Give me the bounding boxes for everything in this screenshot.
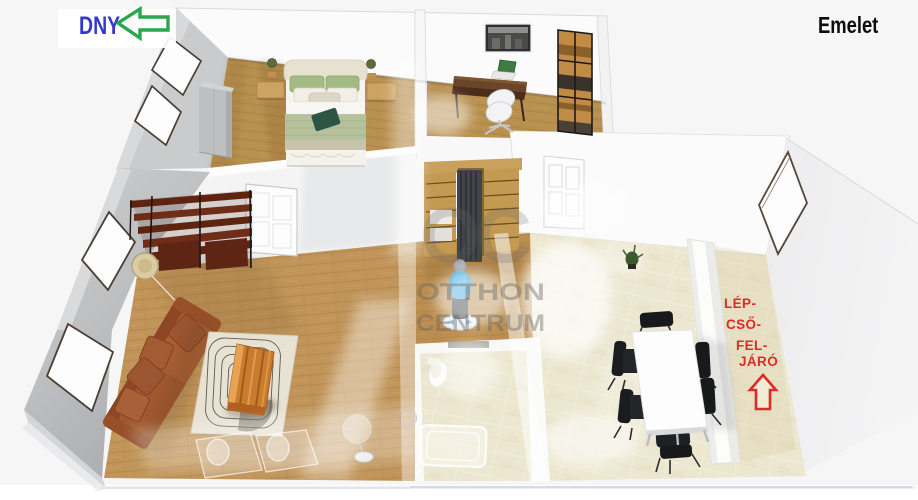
svg-text:LÉP-: LÉP- — [724, 296, 756, 311]
svg-text:Emelet: Emelet — [818, 13, 878, 38]
svg-text:FEL-: FEL- — [736, 338, 768, 353]
svg-text:OC: OC — [420, 191, 531, 279]
svg-text:CENTRUM: CENTRUM — [416, 310, 545, 337]
svg-text:OTTHON: OTTHON — [416, 279, 545, 306]
svg-text:CSŐ-: CSŐ- — [726, 317, 761, 332]
svg-text:DNY: DNY — [79, 12, 120, 40]
svg-text:JÁRÓ: JÁRÓ — [739, 354, 778, 369]
